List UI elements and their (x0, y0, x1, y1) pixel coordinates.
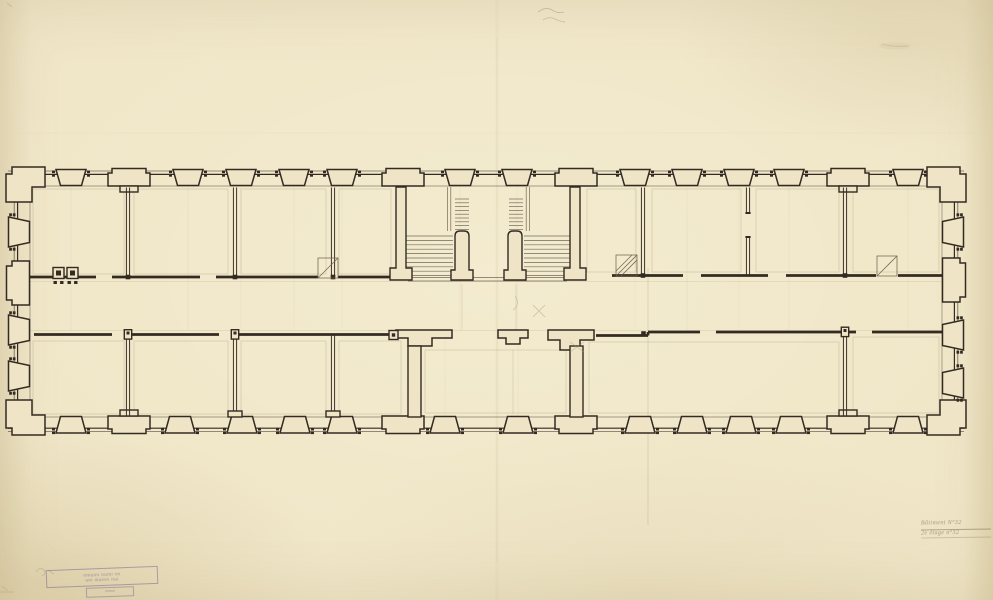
hall-west-wall (408, 346, 421, 417)
floor-plan-drawing (0, 0, 993, 600)
stamp-sub-line: nmnui (105, 589, 115, 593)
stair-newel-east (504, 231, 526, 280)
stair-newel-west (451, 231, 473, 280)
window-piers (7, 169, 966, 435)
stair-treads (406, 199, 570, 276)
archive-stamp-sub: nmnui (86, 586, 134, 598)
room-outlines (33, 189, 939, 414)
stairwell-east-wall (564, 187, 586, 280)
central-staircase (390, 187, 586, 281)
stairwell-west-wall (390, 187, 412, 280)
paper-sheet: nmuini numi im uni muinn nui nmnui Bâtim… (0, 0, 993, 600)
pencil-construction-lines (20, 38, 975, 562)
corridor-walls (30, 276, 943, 336)
annotation-line-2: 2e étage n°32 (921, 529, 991, 538)
wall-junction-blocks (124, 273, 848, 339)
pencil-annotation: Bâtiment N°32 2e étage n°32 (921, 520, 991, 539)
pencil-scribbles (0, 3, 911, 592)
corner-piers (6, 167, 966, 435)
lower-hall (389, 330, 648, 417)
exterior-wall-lines (8, 170, 964, 432)
hall-east-wall (570, 346, 583, 417)
